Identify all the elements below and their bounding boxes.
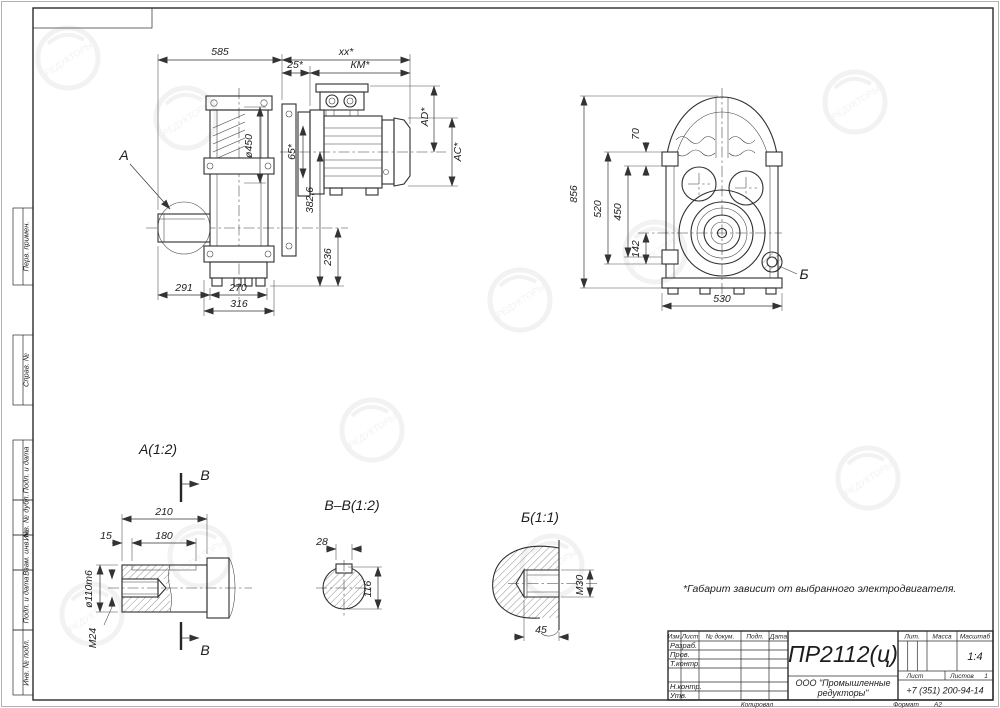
margin-field: Взам. инв. № bbox=[13, 529, 33, 575]
scale-value: 1:4 bbox=[967, 651, 982, 663]
lit-label: Лит. bbox=[903, 634, 919, 641]
listov-label: Листов bbox=[949, 673, 974, 680]
section-bb-view: В–В(1:2) 28 116 bbox=[315, 497, 382, 616]
listov-value: 1 bbox=[984, 673, 988, 680]
margin-field: Подп. и дата bbox=[13, 440, 33, 500]
dim-270: 270 bbox=[228, 282, 247, 294]
row-nkontr: Н.контр. bbox=[670, 682, 702, 691]
col-podp: Подп. bbox=[746, 633, 763, 641]
dim-3826: 382,6 bbox=[304, 187, 316, 213]
margin-field: Перв. примен. bbox=[13, 208, 33, 285]
col-izm: Изм. bbox=[668, 634, 682, 641]
field-podp-data-2: Подп. и дата bbox=[22, 577, 31, 624]
field-podp-data-1: Подп. и дата bbox=[22, 447, 31, 494]
dim-45: 45 bbox=[535, 624, 547, 636]
footnote: *Габарит зависит от выбранного электродв… bbox=[683, 583, 956, 595]
col-list: Лист bbox=[681, 634, 699, 641]
drawing-sheet: РЕДУКТОРЫ Перв. примен. Справ. № Подп. и… bbox=[0, 0, 1000, 708]
watermark-layer bbox=[38, 28, 898, 644]
dim-450-side: 450 bbox=[612, 203, 624, 221]
dim-585: 585 bbox=[211, 46, 229, 58]
dim-15: 15 bbox=[100, 530, 112, 542]
dim-116: 116 bbox=[362, 580, 374, 597]
dim-d110: ø110m6 bbox=[83, 570, 95, 608]
dim-236: 236 bbox=[322, 248, 334, 267]
dim-m30: М30 bbox=[574, 575, 586, 596]
row-prov: Пров. bbox=[670, 650, 690, 659]
view-label-b: Б bbox=[799, 266, 808, 282]
col-data: Дата bbox=[769, 634, 788, 641]
dim-180: 180 bbox=[155, 530, 173, 542]
margin-field: Подп. и дата bbox=[13, 570, 33, 630]
dim-28: 28 bbox=[315, 536, 328, 548]
detail-a-view: А(1:2) В В 210 15 180 ø110m6 bbox=[83, 441, 252, 658]
detail-b-title: Б(1:1) bbox=[521, 509, 559, 525]
front-view: А 585 xx* 25* bbox=[118, 46, 464, 316]
company-line2: редукторы" bbox=[817, 688, 870, 698]
section-label-b-top: В bbox=[200, 467, 209, 483]
dim-142: 142 bbox=[630, 240, 642, 258]
left-margin-fields: Перв. примен. Справ. № Подп. и дата Инв.… bbox=[13, 208, 33, 695]
detail-a-title: А(1:2) bbox=[138, 441, 177, 457]
row-tkontr: Т.контр. bbox=[670, 659, 700, 668]
dim-m24: М24 bbox=[87, 628, 99, 649]
field-sprav-no: Справ. № bbox=[22, 353, 31, 387]
dim-450-flange: ø450 bbox=[243, 134, 255, 158]
dim-ac: AC* bbox=[452, 142, 464, 163]
dim-291: 291 bbox=[174, 282, 193, 294]
margin-field: Справ. № bbox=[13, 335, 33, 405]
field-vzam-inv: Взам. инв. № bbox=[22, 529, 31, 575]
dim-856: 856 bbox=[568, 185, 580, 203]
dim-70: 70 bbox=[630, 128, 642, 140]
corner-doc-box bbox=[33, 8, 152, 28]
format-label: Формат bbox=[893, 702, 919, 708]
view-label-a: А bbox=[118, 147, 128, 163]
section-bb-title: В–В(1:2) bbox=[324, 497, 379, 513]
doc-number: ПР2112(ц) bbox=[788, 641, 898, 667]
list-label: Лист bbox=[906, 673, 924, 680]
col-dokum: № докум. bbox=[706, 633, 735, 641]
dim-65: 65* bbox=[286, 143, 298, 160]
dim-ad: AD* bbox=[419, 107, 431, 128]
drawing-canvas: РЕДУКТОРЫ Перв. примен. Справ. № Подп. и… bbox=[0, 0, 1000, 708]
dim-xx: xx* bbox=[338, 46, 355, 58]
row-razrab: Разраб. bbox=[670, 641, 697, 650]
margin-field: Инв. № подл. bbox=[13, 630, 33, 695]
side-view: Б 856 520 450 70 142 530 bbox=[568, 88, 809, 311]
masshtab-label: Масштаб bbox=[960, 633, 991, 641]
row-utv: Утв. bbox=[669, 691, 687, 700]
dim-km: КМ* bbox=[350, 59, 370, 71]
field-inv-podl: Инв. № подл. bbox=[22, 639, 31, 686]
motor bbox=[316, 84, 410, 195]
company-phone: +7 (351) 200-94-14 bbox=[906, 686, 983, 696]
section-label-b-bottom: В bbox=[200, 642, 209, 658]
dim-520: 520 bbox=[592, 200, 604, 218]
field-perv-primen: Перв. примен. bbox=[22, 222, 31, 272]
dim-316: 316 bbox=[230, 298, 248, 310]
kopiroval-label: Копировал bbox=[741, 702, 774, 708]
detail-b-view: Б(1:1) М30 45 bbox=[493, 509, 600, 641]
company-line1: ООО "Промышленные bbox=[795, 678, 890, 688]
massa-label: Масса bbox=[932, 634, 952, 641]
dim-25: 25* bbox=[286, 59, 304, 71]
title-block: Изм. Лист № докум. Подп. Дата Разраб. Пр… bbox=[668, 631, 993, 708]
format-value: А2 bbox=[933, 702, 942, 708]
dim-530: 530 bbox=[713, 293, 731, 305]
dim-210: 210 bbox=[154, 506, 173, 518]
